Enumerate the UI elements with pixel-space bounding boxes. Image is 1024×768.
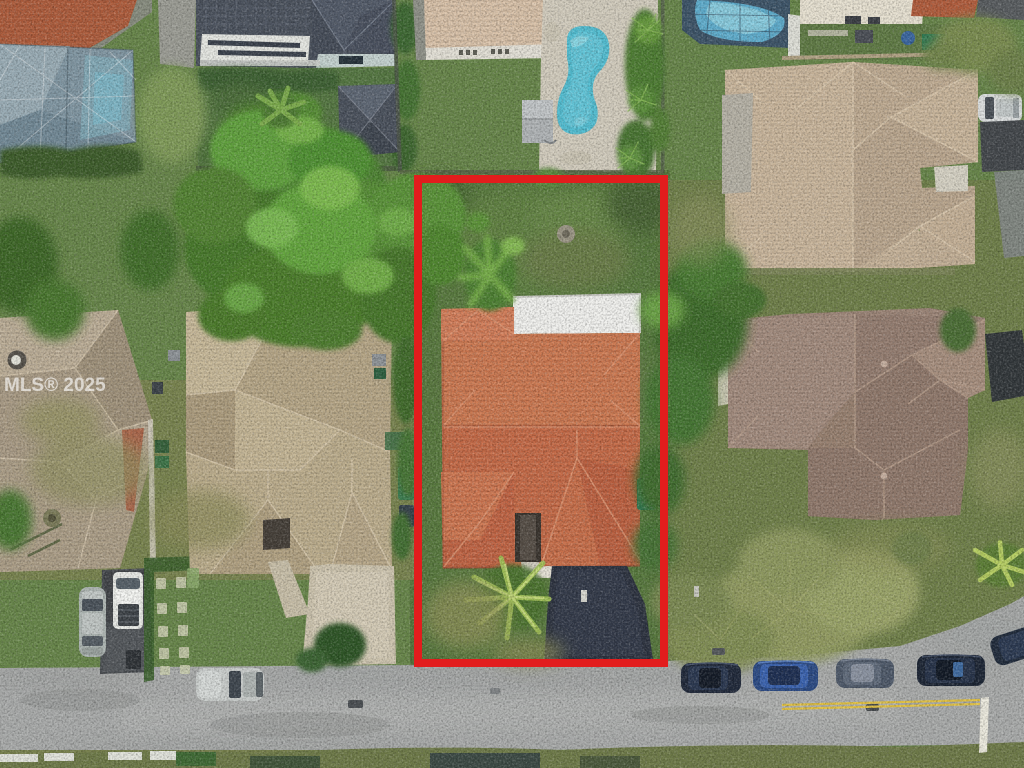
svg-text:MLS® 2025: MLS® 2025 (4, 375, 106, 396)
